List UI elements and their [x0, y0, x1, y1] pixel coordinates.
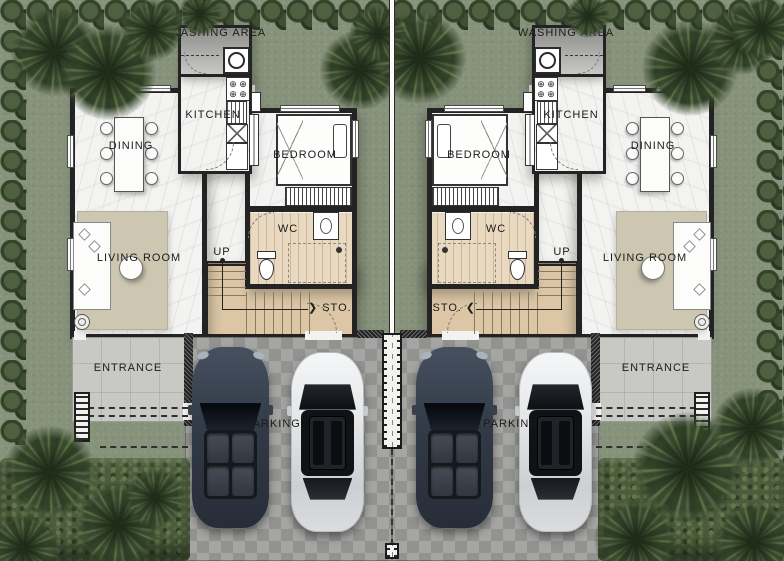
window [444, 105, 504, 112]
wc-vanity-sink [313, 212, 339, 240]
side-mirror [287, 406, 292, 416]
side-mirror [188, 405, 193, 415]
car-seat [431, 466, 453, 496]
wc-divider-wall [427, 206, 539, 212]
room-label-living-room: LIVING ROOM [89, 252, 189, 264]
dining-chair [671, 122, 684, 135]
plant-pot [694, 314, 710, 330]
window [710, 135, 717, 168]
stair-label-up: UP [202, 246, 242, 258]
shower-area [288, 243, 346, 283]
area-label-entrance: ENTRANCE [78, 362, 178, 374]
window [425, 120, 432, 158]
side-mirror [515, 406, 520, 416]
property-divider-wall [382, 333, 402, 449]
room-label-kitchen: KITCHEN [531, 109, 611, 121]
wc-divider-wall [245, 206, 357, 212]
side-mirror [412, 405, 417, 415]
car-sunroof [309, 416, 347, 469]
property-boundary-dashed [100, 446, 188, 448]
car-seat [232, 433, 254, 463]
walkway-line [88, 407, 188, 409]
car-seat [431, 433, 453, 463]
car-white [519, 352, 592, 532]
dining-chair [100, 172, 113, 185]
room-label-living-room: LIVING ROOM [595, 252, 695, 264]
area-label-parking: PARKING [233, 418, 313, 430]
room-label-washing-area: WASHING AREA [506, 27, 626, 39]
car-cockpit [428, 430, 480, 499]
car-seat [456, 466, 478, 496]
side-mirror [591, 406, 596, 416]
dining-chair [626, 172, 639, 185]
walkway-line [596, 407, 696, 409]
walkway-line [88, 415, 188, 417]
washing-machine [534, 47, 561, 74]
dining-table [114, 117, 144, 192]
property-divider-line [389, 0, 395, 335]
car-seat [207, 466, 229, 496]
washing-machine [223, 47, 250, 74]
side-mirror [363, 406, 368, 416]
car-seat [232, 466, 254, 496]
car-rear-window [531, 478, 581, 500]
bedroom-shelf [525, 114, 535, 166]
stove: ⊕⊕⊕⊕ [534, 77, 558, 101]
room-label-kitchen: KITCHEN [173, 109, 253, 121]
stove: ⊕⊕⊕⊕ [226, 77, 250, 101]
porch-door-opening [74, 331, 86, 340]
stair-treads-main [246, 292, 312, 334]
wc-vanity-sink [445, 212, 471, 240]
dining-chair [626, 122, 639, 135]
wardrobe [285, 187, 352, 206]
room-label-dining: DINING [91, 140, 171, 152]
side-fence [400, 330, 427, 338]
stove-burner-icon: ⊕ [537, 90, 545, 99]
stove-burner-icon: ⊕ [229, 90, 237, 99]
dining-chair [100, 122, 113, 135]
toilet-tank [508, 251, 527, 259]
dining-chair [671, 172, 684, 185]
sofa [673, 222, 711, 310]
stair-label-up: UP [542, 246, 582, 258]
shower-area [438, 243, 496, 283]
side-fence [357, 330, 384, 338]
car-windshield [527, 384, 584, 409]
window [280, 105, 340, 112]
car-dark-convertible [416, 347, 493, 528]
car-dark-convertible [192, 347, 269, 528]
plant-pot [74, 314, 90, 330]
area-label-parking: PARKING [471, 418, 551, 430]
kitchen-sink [226, 124, 248, 143]
wardrobe [432, 187, 499, 206]
room-label-dining: DINING [613, 140, 693, 152]
room-label-wc: WC [476, 223, 516, 235]
property-divider-post [385, 543, 399, 559]
car-windshield [299, 384, 356, 409]
side-mirror [268, 405, 273, 415]
floor-plan-canvas: ⊕⊕⊕⊕ [0, 0, 784, 561]
room-label-wc: WC [268, 223, 308, 235]
window [67, 135, 74, 168]
dining-chair [145, 172, 158, 185]
car-white [291, 352, 364, 532]
stove-burner-icon: ⊕ [229, 80, 237, 89]
porch-door-opening [698, 331, 710, 340]
window [613, 85, 646, 92]
stair-direction-line [476, 309, 562, 310]
stove-burner-icon: ⊕ [239, 80, 247, 89]
storage-label-text: STO. [322, 302, 351, 314]
area-label-entrance: ENTRANCE [606, 362, 706, 374]
storage-label: ❯ STO. [308, 302, 352, 314]
window [352, 120, 359, 158]
car-seat [207, 433, 229, 463]
stove-burner-icon: ⊕ [239, 90, 247, 99]
kitchen-sink [536, 124, 558, 143]
storage-label: ❮ STO. [432, 302, 476, 314]
toilet-tank [257, 251, 276, 259]
car-cockpit [204, 430, 256, 499]
side-mirror [492, 405, 497, 415]
stair-direction-line [222, 261, 223, 309]
dining-table [640, 117, 670, 192]
storage-arrow-icon: ❯ [308, 302, 318, 314]
stair-treads-upper [208, 263, 246, 303]
stair-treads-upper [538, 263, 576, 303]
room-label-bedroom: BEDROOM [439, 149, 519, 161]
stove-burner-icon: ⊕ [547, 80, 555, 89]
property-divider-dashed [391, 449, 393, 545]
car-seat [456, 433, 478, 463]
stove-burner-icon: ⊕ [547, 90, 555, 99]
storage-label-text: STO. [432, 302, 461, 314]
dining-chair [145, 122, 158, 135]
window [710, 238, 717, 271]
stair-treads-main [472, 292, 538, 334]
stove-burner-icon: ⊕ [537, 80, 545, 89]
storage-arrow-icon: ❮ [466, 302, 476, 314]
bedroom-shelf [249, 114, 259, 166]
stair-direction-line [561, 261, 562, 309]
room-label-bedroom: BEDROOM [265, 149, 345, 161]
stair-direction-line [222, 309, 308, 310]
car-rear-window [303, 478, 353, 500]
